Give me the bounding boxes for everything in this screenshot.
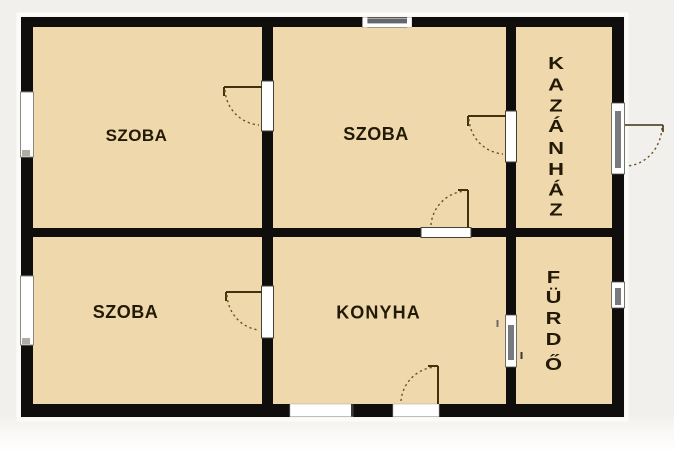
svg-text:H: H — [548, 160, 564, 180]
svg-text:Ü: Ü — [546, 287, 562, 308]
svg-text:D: D — [546, 330, 562, 350]
svg-text:K: K — [548, 54, 564, 74]
svg-text:Z: Z — [549, 96, 562, 116]
svg-text:Ő: Ő — [545, 354, 562, 375]
svg-text:SZOBA: SZOBA — [106, 126, 168, 145]
svg-text:A: A — [548, 75, 564, 95]
svg-text:SZOBA: SZOBA — [93, 302, 159, 322]
svg-text:SZOBA: SZOBA — [343, 124, 409, 144]
svg-text:Z: Z — [549, 200, 562, 220]
svg-text:KONYHA: KONYHA — [336, 303, 421, 323]
svg-text:Á: Á — [548, 179, 564, 200]
svg-text:R: R — [546, 309, 562, 329]
svg-text:N: N — [548, 139, 564, 159]
svg-text:F: F — [547, 268, 560, 288]
svg-text:Á: Á — [548, 116, 564, 137]
